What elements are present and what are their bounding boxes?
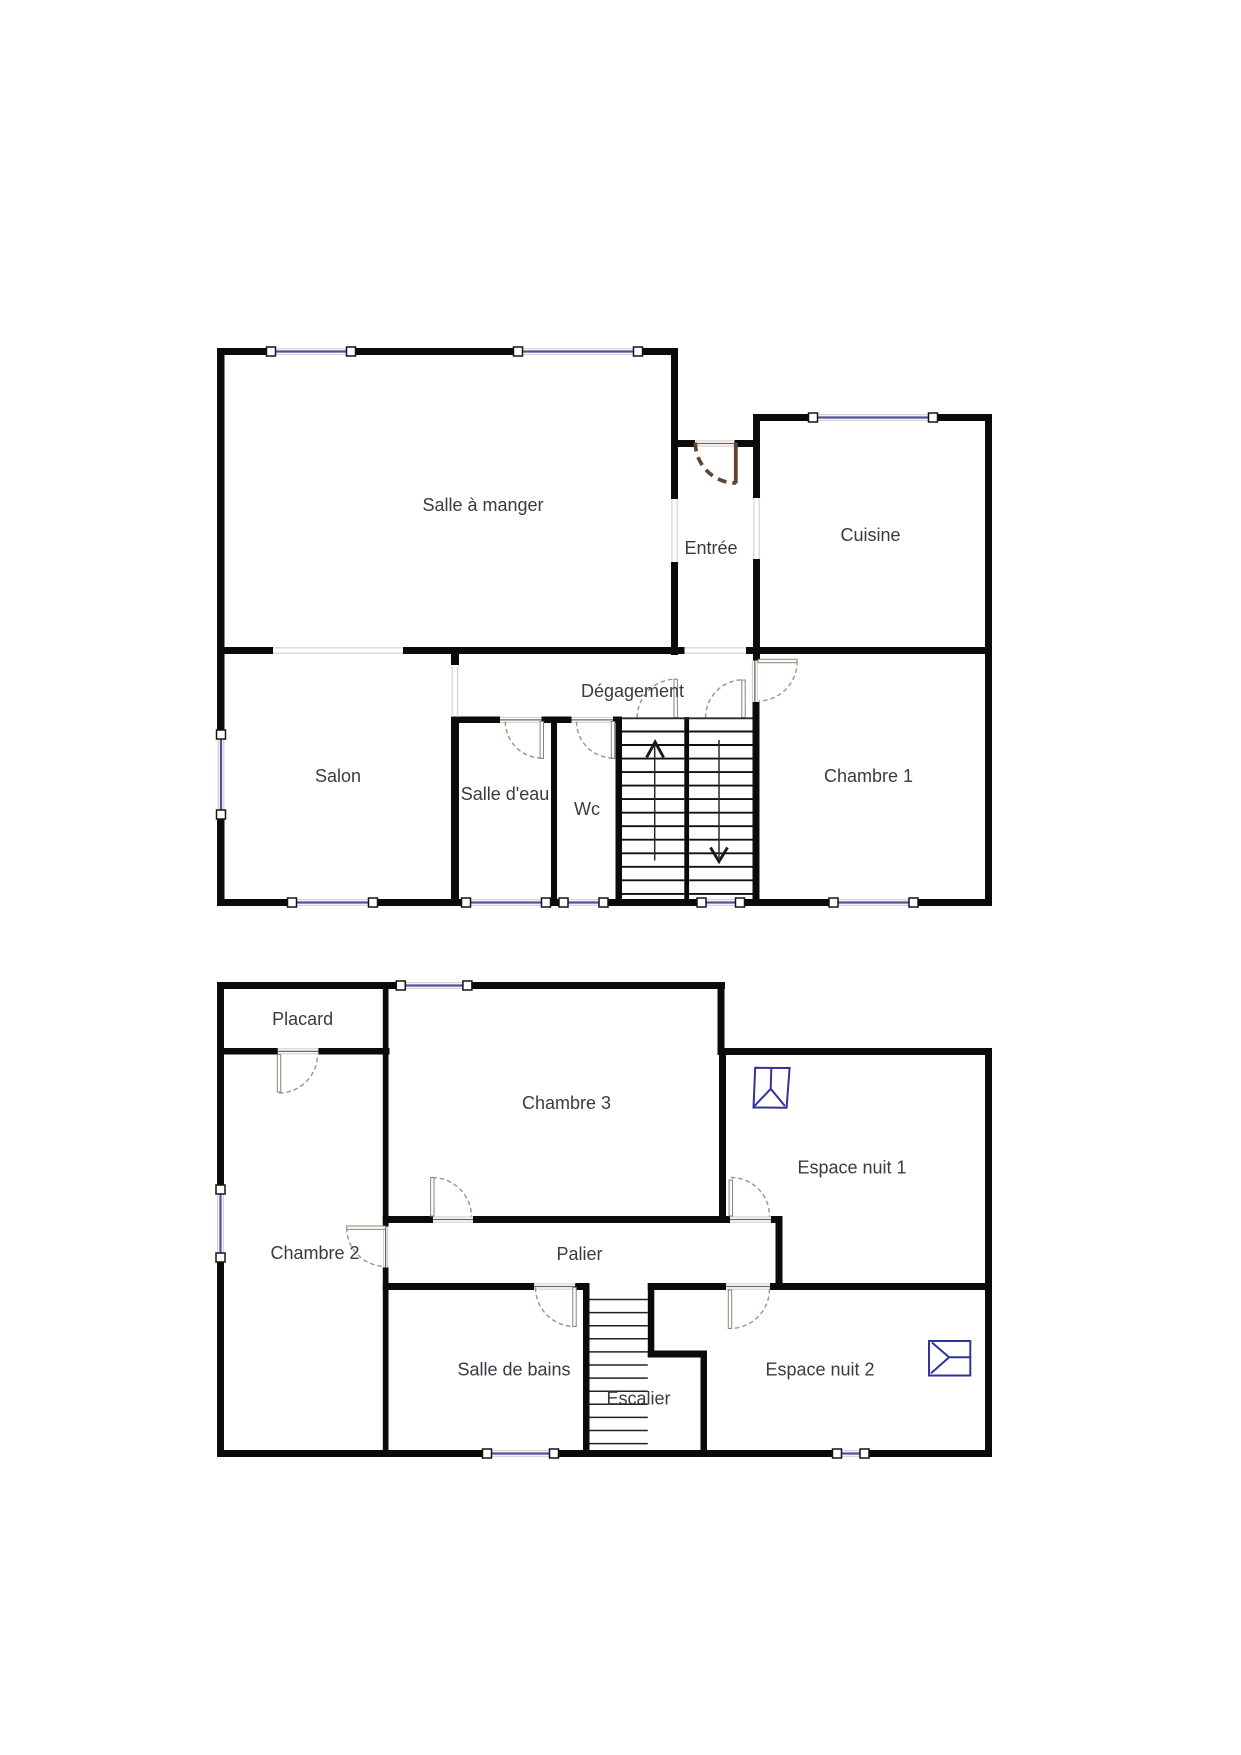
svg-text:Espace nuit 1: Espace nuit 1 <box>797 1158 906 1178</box>
svg-text:Chambre 2: Chambre 2 <box>270 1243 359 1263</box>
svg-text:Salle à manger: Salle à manger <box>422 495 543 515</box>
svg-text:Wc: Wc <box>574 799 600 819</box>
svg-text:Palier: Palier <box>556 1244 602 1264</box>
svg-text:Escalier: Escalier <box>606 1389 670 1409</box>
svg-text:Chambre 3: Chambre 3 <box>522 1093 611 1113</box>
svg-text:Entrée: Entrée <box>684 538 737 558</box>
svg-text:Placard: Placard <box>272 1009 333 1029</box>
svg-text:Salon: Salon <box>315 766 361 786</box>
svg-text:Salle d'eau: Salle d'eau <box>461 784 550 804</box>
svg-text:Espace nuit 2: Espace nuit 2 <box>765 1360 874 1380</box>
svg-text:Chambre 1: Chambre 1 <box>824 766 913 786</box>
svg-text:Cuisine: Cuisine <box>840 525 900 545</box>
svg-text:Dégagement: Dégagement <box>581 681 684 701</box>
svg-text:Salle de bains: Salle de bains <box>457 1360 570 1380</box>
